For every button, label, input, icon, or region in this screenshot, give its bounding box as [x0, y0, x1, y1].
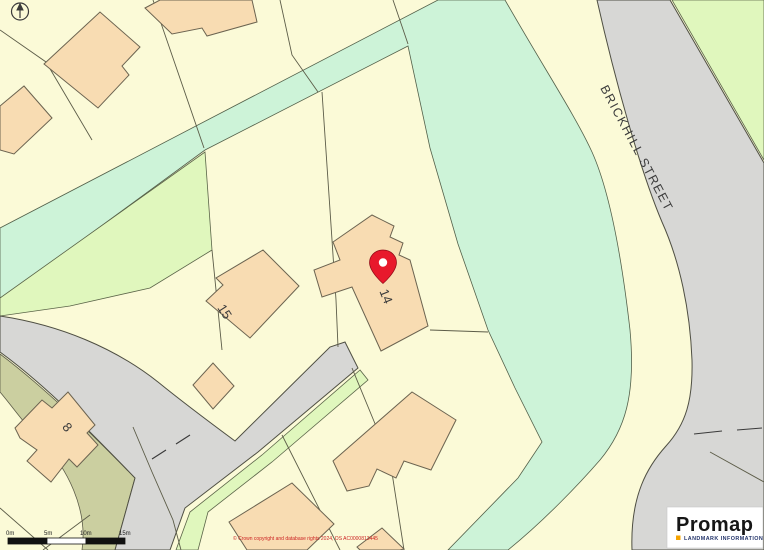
logo-brand-text: Promap	[676, 514, 753, 536]
logo-orange-square-icon	[676, 536, 681, 541]
logo-tagline-text: LANDMARK INFORMATION	[684, 536, 763, 542]
scale-label-15: 15m	[119, 531, 131, 537]
copyright-attribution: © Crown copyright and database rights 20…	[233, 535, 378, 542]
promap-logo: Promap LANDMARK INFORMATION	[667, 507, 763, 548]
map-canvas[interactable]: BRICKHILL STREET 14 15 8 0m 5m 10m 15m ©…	[0, 0, 764, 550]
scale-label-5: 5m	[44, 531, 52, 537]
scale-label-10: 10m	[80, 531, 92, 537]
scale-label-0: 0m	[6, 531, 14, 537]
map-viewport[interactable]: BRICKHILL STREET 14 15 8 0m 5m 10m 15m ©…	[0, 0, 764, 550]
